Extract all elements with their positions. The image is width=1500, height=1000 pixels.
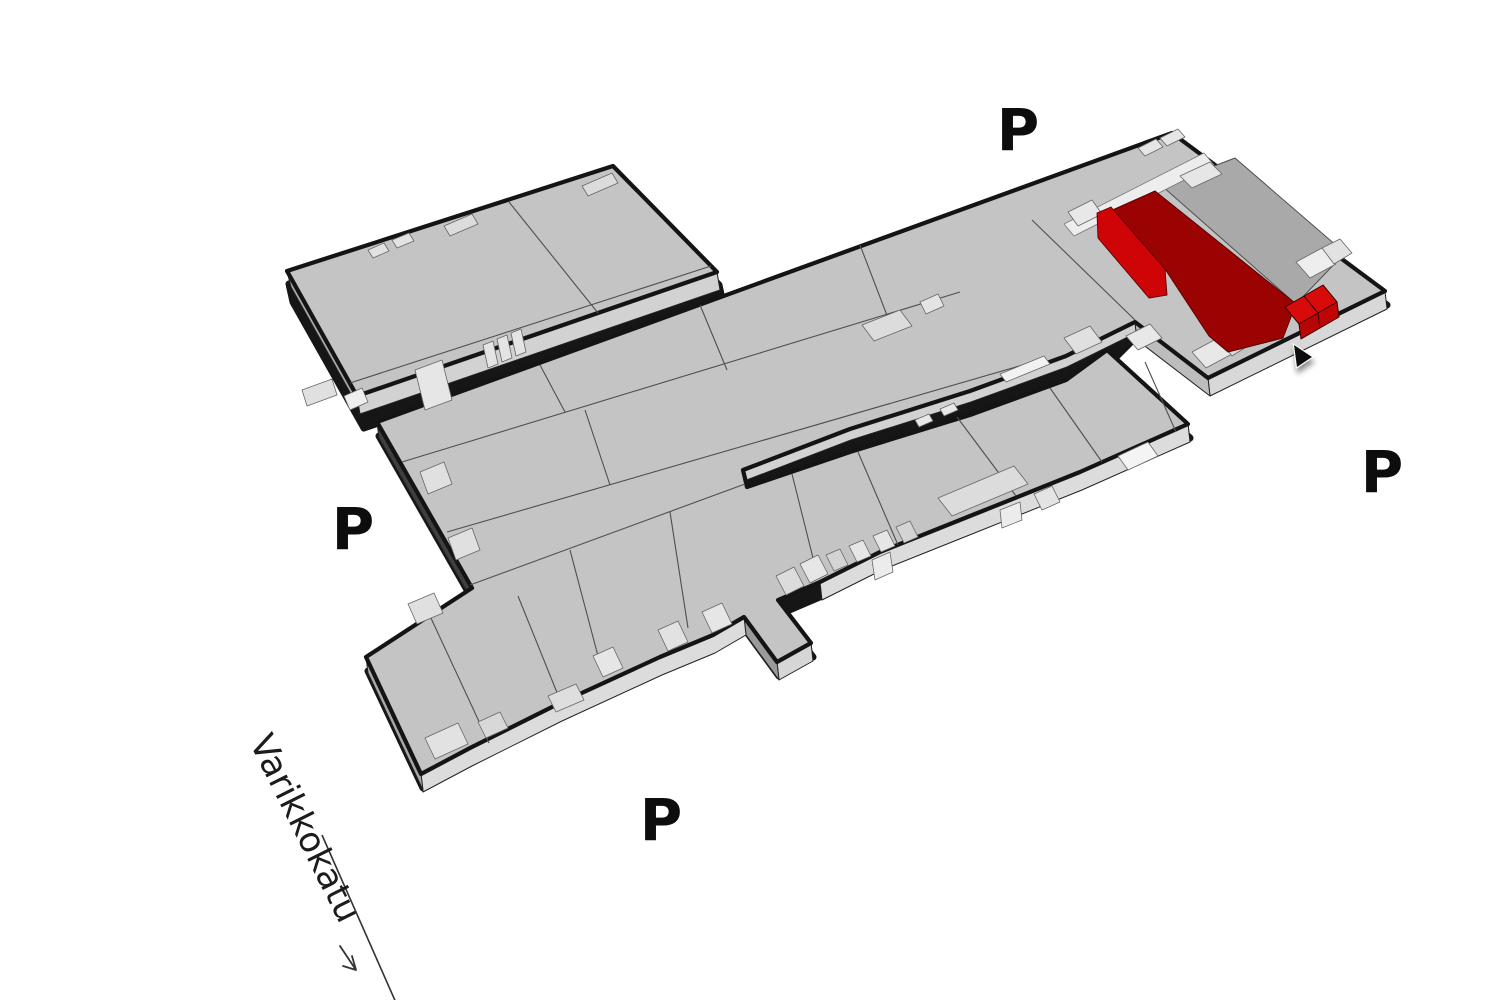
parking-label-east: P bbox=[1361, 438, 1404, 506]
parking-label-west: P bbox=[332, 495, 375, 563]
parking-label-north: P bbox=[997, 96, 1040, 164]
site-map[interactable]: Varikkokatu P P P P bbox=[0, 0, 1500, 1000]
parking-label-south: P bbox=[640, 786, 683, 854]
map-stage: Varikkokatu P P P P bbox=[0, 0, 1500, 1000]
